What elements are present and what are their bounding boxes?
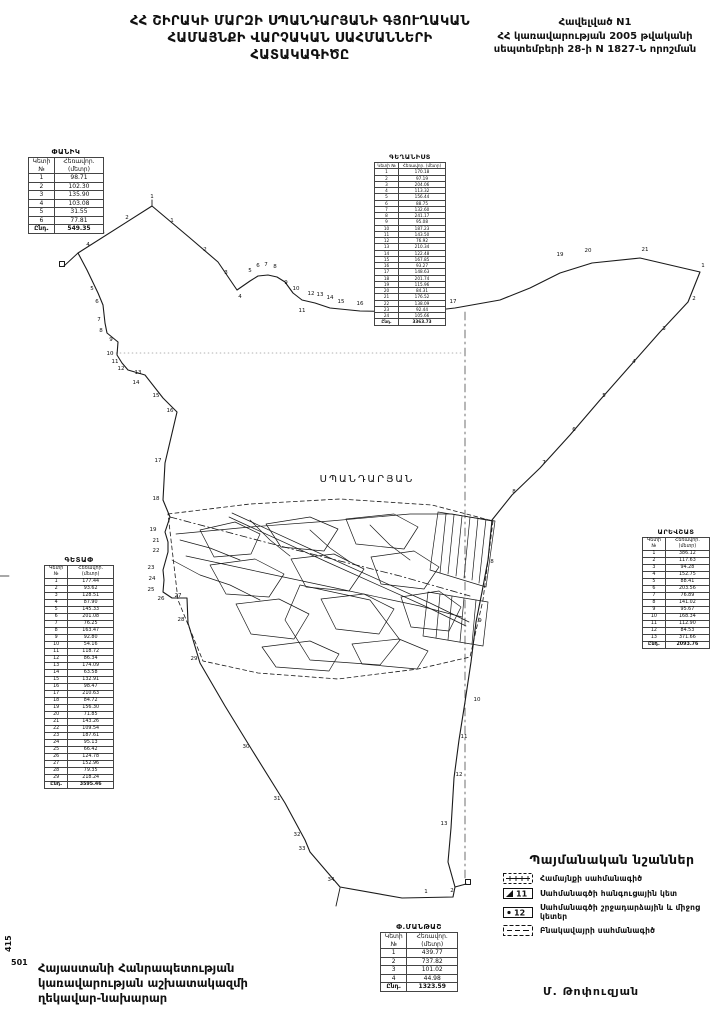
table-cell: 141.02: [665, 599, 709, 606]
title-line-1: ՀՀ ՇԻՐԱԿԻ ՄԱՐԶԻ ՍՊԱՆԴԱՐՅԱՆԻ ԳՅՈՒՂԱԿԱՆ: [70, 14, 530, 31]
boundary-point-label: 11: [112, 359, 119, 365]
table-cell: 5: [29, 208, 55, 217]
distance-table-mantash: Փ.ՄԱՆԹԱՇԿետի №Հեռավոր. (մետր)1439.772737…: [380, 923, 458, 992]
table-row: 1286.34: [45, 655, 114, 662]
boundary-point-label: 28: [178, 617, 185, 623]
boundary-point-label: 32: [294, 832, 301, 838]
table-cell: 174.09: [68, 662, 114, 669]
boundary-point-label: 5: [90, 286, 94, 292]
table-row: Ընդ.1323.59: [381, 983, 458, 992]
distance-table: Կետի №Հեռավոր. (մետր)198.712102.303135.9…: [28, 157, 104, 234]
table-row: 13174.09: [45, 662, 114, 669]
table-row: Կետի №Հեռավոր. (մետր): [45, 566, 114, 579]
table-cell: 737.82: [407, 957, 458, 966]
boundary-point-label: 4: [632, 359, 636, 365]
table-row: 776.25: [45, 620, 114, 627]
boundary-point-label: 15: [153, 393, 160, 399]
distance-table: Կետի №Հեռավոր. (մետր)1177.44293.623128.5…: [44, 565, 114, 789]
boundary-point-label: 17: [450, 299, 457, 305]
boundary-point-label: 31: [274, 796, 281, 802]
table-cell: 93.62: [68, 585, 114, 592]
boundary-point-label: 5: [602, 393, 606, 399]
table-row: Ընդ.2093.76: [643, 641, 710, 648]
table-cell: 168.34: [665, 613, 709, 620]
table-cell: 28: [45, 767, 68, 774]
table-cell: 84.72: [68, 697, 114, 704]
table-cell: 201.08: [68, 613, 114, 620]
table-row: 1177.44: [45, 578, 114, 585]
boundary-point-label: 2: [125, 215, 129, 221]
table-cell: 218.24: [68, 774, 114, 781]
boundary-point-label: 5: [248, 268, 252, 274]
table-cell: 8: [45, 627, 68, 634]
table-cell: 94.28: [665, 564, 709, 571]
boundary-point-label: 9: [109, 337, 113, 343]
table-cell: 2: [381, 957, 407, 966]
table-cell: 54.16: [68, 641, 114, 648]
table-row: 6203.56: [643, 585, 710, 592]
table-cell: 371.66: [665, 634, 709, 641]
boundary-point-label: 19: [557, 252, 564, 258]
table-cell: 16: [45, 683, 68, 690]
table-row: 1698.47: [45, 683, 114, 690]
table-row: 13371.66: [643, 634, 710, 641]
boundary-point-label: 6: [95, 299, 99, 305]
boundary-point-label: 29: [191, 656, 198, 662]
table-cell: 1: [381, 949, 407, 958]
boundary-point-label: 10: [107, 351, 114, 357]
boundary-point-label: 19: [150, 527, 157, 533]
boundary-point-label: 30: [243, 744, 250, 750]
boundary-point-label: 7: [264, 262, 268, 268]
table-cell: 3: [45, 592, 68, 599]
boundary-point-label: 3: [662, 326, 666, 332]
table-cell: 118.72: [68, 648, 114, 655]
table-row: Ընդ.549.35: [29, 225, 104, 234]
table-cell: Ընդ.: [375, 319, 399, 325]
table-row: 5145.33: [45, 606, 114, 613]
table-row: Կետի №Հեռավոր. (մետր): [375, 163, 446, 169]
table-row: 2879.35: [45, 767, 114, 774]
table-cell: Հեռավոր. (մետր): [68, 566, 114, 579]
table-cell: 98.47: [68, 683, 114, 690]
table-cell: 77.81: [54, 216, 103, 225]
table-cell: 203.56: [665, 585, 709, 592]
table-row: 2102.30: [29, 182, 104, 191]
table-cell: 3: [29, 191, 55, 200]
nodal-point-icon: 11: [503, 888, 533, 899]
boundary-point-label: 33: [299, 846, 306, 852]
table-cell: 177.44: [68, 578, 114, 585]
boundary-point-label: 10: [293, 286, 300, 292]
title-line-3: ՀԱՏԱԿԱԳԻԾԸ: [70, 48, 530, 65]
table-cell: Ընդ.: [29, 225, 55, 234]
table-cell: 4: [643, 571, 666, 578]
legend: Պայմանական նշաններ Համայնքի սահմանագիծ 1…: [503, 852, 721, 940]
table-cell: 2093.76: [665, 641, 709, 648]
table-cell: 1323.59: [407, 983, 458, 992]
table-cell: 5: [45, 606, 68, 613]
sheet-number-vertical: 415: [4, 935, 13, 952]
table-row: 15132.91: [45, 676, 114, 683]
table-cell: 14: [45, 669, 68, 676]
table-cell: 2: [643, 557, 666, 564]
table-row: 2566.42: [45, 746, 114, 753]
parcel-lines: [172, 512, 495, 671]
boundary-point-label: 1: [701, 263, 705, 269]
table-cell: 6: [643, 585, 666, 592]
settlement-name-label: ՍՊԱՆԴԱՐՅԱՆ: [320, 474, 415, 485]
table-cell: Կետի №: [29, 158, 55, 174]
table-row: 444.98: [381, 974, 458, 983]
table-cell: 71.85: [68, 711, 114, 718]
table-row: 29218.24: [45, 774, 114, 781]
nodal-spur-se: [455, 884, 466, 887]
boundary-point-label: 9: [284, 280, 288, 286]
boundary-point-label: 26: [158, 596, 165, 602]
table-cell: 79.35: [68, 767, 114, 774]
boundary-point-label: 9: [478, 618, 482, 624]
boundary-point-label: 14: [133, 380, 140, 386]
legend-title: Պայմանական նշաններ: [503, 852, 721, 867]
table-cell: 1: [45, 578, 68, 585]
table-cell: 6: [29, 216, 55, 225]
table-row: 17210.63: [45, 690, 114, 697]
table-cell: 3595.46: [68, 781, 114, 788]
boundary-point-label: 21: [642, 247, 649, 253]
table-cell: 4: [45, 599, 68, 606]
table-cell: 25: [45, 746, 68, 753]
table-cell: 109.54: [68, 725, 114, 732]
table-cell: 76.89: [665, 592, 709, 599]
boundary-point-label: 11: [461, 734, 468, 740]
table-cell: 103.08: [54, 199, 103, 208]
table-cell: 13: [643, 634, 666, 641]
boundary-point-label: 2: [203, 247, 207, 253]
table-cell: 95.13: [68, 739, 114, 746]
table-cell: 132.91: [68, 676, 114, 683]
table-title: Փ.ՄԱՆԹԱՇ: [380, 923, 458, 931]
signatory-title: Հայաստանի Հանրապետության կառավարության ա…: [38, 961, 248, 1006]
nodal-spur-nw: [64, 253, 78, 266]
sheet-number: 501: [11, 958, 28, 967]
boundary-point-label: 10: [474, 697, 481, 703]
table-cell: 18: [45, 697, 68, 704]
table-cell: Հեռավոր. (մետր): [665, 538, 709, 551]
signatory-line-2: կառավարության աշխատակազմի: [38, 976, 248, 991]
distance-table-geghanist: ԳԵՂԱՆԻՍՏԿետի №Հեռավոր. (մետր)1170.18297.…: [374, 153, 446, 326]
table-cell: 23: [45, 732, 68, 739]
boundary-point-label: 16: [167, 408, 174, 414]
boundary-point-label: 12: [456, 772, 463, 778]
table-cell: 31.55: [54, 208, 103, 217]
table-cell: 163.47: [68, 627, 114, 634]
boundary-point-label: 11: [299, 308, 306, 314]
table-title: ԳԵՏԱՓ: [44, 556, 114, 564]
table-cell: 135.90: [54, 191, 103, 200]
legend-label: Սահմանագծի հանգուցային կետ: [540, 889, 677, 898]
table-row: 198.71: [29, 174, 104, 183]
table-cell: 27: [45, 760, 68, 767]
table-cell: 10: [45, 641, 68, 648]
table-cell: 10: [643, 613, 666, 620]
table-title: ԳԵՂԱՆԻՍՏ: [374, 153, 446, 161]
table-cell: 3: [643, 564, 666, 571]
table-row: Կետի №Հեռավոր. (մետր): [29, 158, 104, 174]
table-row: 6201.08: [45, 613, 114, 620]
table-row: 293.62: [45, 585, 114, 592]
boundary-point-label: 15: [338, 299, 345, 305]
boundary-point-label: 1: [150, 194, 154, 200]
table-cell: Կետի №: [45, 566, 68, 579]
table-row: 1439.77: [381, 949, 458, 958]
table-row: 8141.02: [643, 599, 710, 606]
table-cell: 117.63: [665, 557, 709, 564]
table-cell: 4: [381, 974, 407, 983]
table-row: 4152.75: [643, 571, 710, 578]
boundary-point-label: 16: [357, 301, 364, 307]
table-row: Ընդ.3595.46: [45, 781, 114, 788]
table-row: 11112.90: [643, 620, 710, 627]
boundary-point-label: 7: [97, 317, 101, 323]
table-row: 2737.82: [381, 957, 458, 966]
table-cell: Կետի №: [643, 538, 666, 551]
boundary-point-label: 12: [118, 366, 125, 372]
legend-item-community-boundary: Համայնքի սահմանագիծ: [503, 873, 721, 884]
table-cell: 6: [45, 613, 68, 620]
appendix-line-2: ՀՀ կառավարության 2005 թվականի: [470, 30, 720, 44]
legend-item-nodal-point: 11 Սահմանագծի հանգուցային կետ: [503, 888, 721, 899]
table-cell: 8: [643, 599, 666, 606]
table-row: 2495.13: [45, 739, 114, 746]
table-cell: 152.96: [68, 760, 114, 767]
cadastral-plan-page: ՀՀ ՇԻՐԱԿԻ ՄԱՐԶԻ ՍՊԱՆԴԱՐՅԱՆԻ ԳՅՈՒՂԱԿԱՆ ՀԱ…: [0, 0, 725, 1012]
table-cell: Ընդ.: [381, 983, 407, 992]
distance-table-panik: ՓԱՆԻԿԿետի №Հեռավոր. (մետր)198.712102.303…: [28, 148, 104, 234]
table-row: 3101.02: [381, 966, 458, 975]
legend-label: Բնակավայրի սահմանագիծ: [540, 926, 655, 935]
boundary-point-label: 2: [450, 888, 454, 894]
table-cell: 145.33: [68, 606, 114, 613]
table-cell: 143.26: [68, 718, 114, 725]
boundary-point-label: 27: [175, 593, 182, 599]
boundary-point-label: 3: [224, 270, 228, 276]
table-row: 1054.16: [45, 641, 114, 648]
table-row: 19156.30: [45, 704, 114, 711]
table-row: 3128.51: [45, 592, 114, 599]
boundary-point-label: 13: [317, 292, 324, 298]
table-row: 2117.63: [643, 557, 710, 564]
appendix-line-1: Հավելված N1: [470, 16, 720, 30]
table-row: 992.80: [45, 634, 114, 641]
table-cell: 386.12: [665, 550, 709, 557]
boundary-point-label: 25: [148, 587, 155, 593]
table-cell: 3: [381, 966, 407, 975]
table-cell: 20: [45, 711, 68, 718]
table-cell: Հեռավոր. (մետր): [407, 933, 458, 949]
table-cell: Ընդ.: [643, 641, 666, 648]
boundary-point-label: 8: [512, 489, 516, 495]
table-cell: 9: [45, 634, 68, 641]
table-cell: 19: [45, 704, 68, 711]
boundary-point-label: 4: [86, 242, 90, 248]
boundary-point-label: 1: [424, 889, 428, 895]
table-cell: 1: [643, 550, 666, 557]
table-cell: 3363.73: [399, 319, 446, 325]
table-cell: 102.30: [54, 182, 103, 191]
table-cell: 98.71: [54, 174, 103, 183]
svg-text:11: 11: [516, 890, 528, 899]
table-row: 3135.90: [29, 191, 104, 200]
appendix-note: Հավելված N1 ՀՀ կառավարության 2005 թվական…: [470, 16, 720, 57]
table-cell: 87.90: [68, 599, 114, 606]
boundary-point-label: 12: [308, 291, 315, 297]
table-cell: 156.30: [68, 704, 114, 711]
table-row: 776.89: [643, 592, 710, 599]
boundary-point-label: 17: [155, 458, 162, 464]
turning-point-icon: 12: [503, 907, 533, 918]
table-row: 11118.72: [45, 648, 114, 655]
distance-table: Կետի №Հեռավոր. (մետր)1170.18297.193204.0…: [374, 162, 446, 326]
table-row: 1284.53: [643, 627, 710, 634]
table-row: 487.90: [45, 599, 114, 606]
table-row: 26124.78: [45, 753, 114, 760]
table-cell: 187.61: [68, 732, 114, 739]
table-cell: Հեռավոր. (մետր): [54, 158, 103, 174]
table-cell: 44.98: [407, 974, 458, 983]
distance-table-getap: ԳԵՏԱՓԿետի №Հեռավոր. (մետր)1177.44293.623…: [44, 556, 114, 789]
table-cell: 4: [29, 199, 55, 208]
table-row: 21143.26: [45, 718, 114, 725]
boundary-point-label: 18: [153, 496, 160, 502]
distance-table: Կետի №Հեռավոր. (մետր)1439.772737.823101.…: [380, 932, 458, 992]
boundary-point-label: 22: [153, 548, 160, 554]
boundary-point-label: 34: [328, 877, 335, 883]
boundary-point-label: 13: [441, 821, 448, 827]
table-row: 588.41: [643, 578, 710, 585]
boundary-point-label: 8: [273, 264, 277, 270]
table-row: Կետի №Հեռավոր. (մետր): [381, 933, 458, 949]
table-cell: 5: [643, 578, 666, 585]
distance-table-arevshat: ԱՐԵՎՇԱՏԿետի №Հեռավոր. (մետր)1386.122117.…: [642, 528, 710, 649]
table-row: 1386.12: [643, 550, 710, 557]
table-row: 4103.08: [29, 199, 104, 208]
boundary-point-label: 24: [149, 576, 156, 582]
table-cell: Ընդ.: [45, 781, 68, 788]
table-cell: 15: [45, 676, 68, 683]
community-boundary-icon: [503, 873, 533, 884]
table-row: Կետի №Հեռավոր. (մետր): [643, 538, 710, 551]
table-cell: 12: [643, 627, 666, 634]
table-row: 1884.72: [45, 697, 114, 704]
table-cell: 11: [45, 648, 68, 655]
table-cell: 13: [45, 662, 68, 669]
table-cell: 152.75: [665, 571, 709, 578]
legend-item-turning-points: 12 Սահմանագծի շրջադարձային և միջոց կետեր: [503, 903, 721, 921]
signatory-line-3: ղեկավար-նախարար: [38, 991, 248, 1006]
table-cell: 86.34: [68, 655, 114, 662]
table-cell: 1: [29, 174, 55, 183]
table-cell: 24: [45, 739, 68, 746]
table-cell: 84.53: [665, 627, 709, 634]
table-cell: 7: [45, 620, 68, 627]
boundary-point-label: 2: [692, 296, 696, 302]
table-cell: 26: [45, 753, 68, 760]
legend-label: Համայնքի սահմանագիծ: [540, 874, 642, 883]
table-row: 27152.96: [45, 760, 114, 767]
table-cell: 66.42: [68, 746, 114, 753]
boundary-point-label: 23: [148, 565, 155, 571]
table-cell: 439.77: [407, 949, 458, 958]
settlement-axis-line: [170, 517, 470, 596]
table-row: 8163.47: [45, 627, 114, 634]
table-cell: 2: [45, 585, 68, 592]
table-cell: 101.02: [407, 966, 458, 975]
boundary-spur-south: [336, 888, 340, 906]
table-cell: 549.35: [54, 225, 103, 234]
table-row: Ընդ.3363.73: [375, 319, 446, 325]
table-cell: 92.80: [68, 634, 114, 641]
table-cell: 63.58: [68, 669, 114, 676]
appendix-line-3: սեպտեմբերի 28-ի N 1827-Ն որոշման: [470, 43, 720, 57]
boundary-point-label: 14: [327, 295, 334, 301]
signature-name: Մ. Թոփուզյան: [543, 985, 639, 998]
boundary-point-label: 6: [256, 263, 260, 269]
table-row: 2071.85: [45, 711, 114, 718]
table-row: 531.55: [29, 208, 104, 217]
legend-item-settlement-boundary: Բնակավայրի սահմանագիծ: [503, 925, 721, 936]
settlement-boundary-icon: [503, 925, 533, 936]
boundary-point-label: 21: [153, 538, 160, 544]
table-cell: 128.51: [68, 592, 114, 599]
table-row: 23187.61: [45, 732, 114, 739]
table-title: ԱՐԵՎՇԱՏ: [642, 528, 710, 536]
table-cell: 17: [45, 690, 68, 697]
table-cell: 95.67: [665, 606, 709, 613]
table-cell: 12: [45, 655, 68, 662]
table-cell: 124.78: [68, 753, 114, 760]
table-cell: 22: [45, 725, 68, 732]
boundary-point-label: 8: [99, 328, 103, 334]
page-title: ՀՀ ՇԻՐԱԿԻ ՄԱՐԶԻ ՍՊԱՆԴԱՐՅԱՆԻ ԳՅՈՒՂԱԿԱՆ ՀԱ…: [70, 14, 530, 65]
table-cell: 210.63: [68, 690, 114, 697]
table-cell: 21: [45, 718, 68, 725]
title-line-2: ՀԱՄԱՅՆՔԻ ՎԱՐՉԱԿԱՆ ՍԱՀՄԱՆՆԵՐԻ: [70, 31, 530, 48]
distance-table: Կետի №Հեռավոր. (մետր)1386.122117.63394.2…: [642, 537, 710, 649]
table-cell: 88.41: [665, 578, 709, 585]
boundary-point-label: 6: [572, 427, 576, 433]
table-row: 10168.34: [643, 613, 710, 620]
table-cell: 29: [45, 774, 68, 781]
table-cell: 112.90: [665, 620, 709, 627]
table-cell: 76.25: [68, 620, 114, 627]
signatory-line-1: Հայաստանի Հանրապետության: [38, 961, 248, 976]
boundary-point-label: 7: [542, 460, 546, 466]
table-row: 1463.58: [45, 669, 114, 676]
table-cell: Կետի №: [375, 163, 399, 169]
boundary-point-label: 1: [170, 218, 174, 224]
table-row: 677.81: [29, 216, 104, 225]
table-cell: 11: [643, 620, 666, 627]
table-row: 394.28: [643, 564, 710, 571]
table-cell: 7: [643, 592, 666, 599]
table-row: 995.67: [643, 606, 710, 613]
table-title: ՓԱՆԻԿ: [28, 148, 104, 156]
table-cell: Կետի №: [381, 933, 407, 949]
table-row: 22109.54: [45, 725, 114, 732]
svg-text:12: 12: [514, 908, 525, 917]
boundary-point-label: 20: [585, 248, 592, 254]
